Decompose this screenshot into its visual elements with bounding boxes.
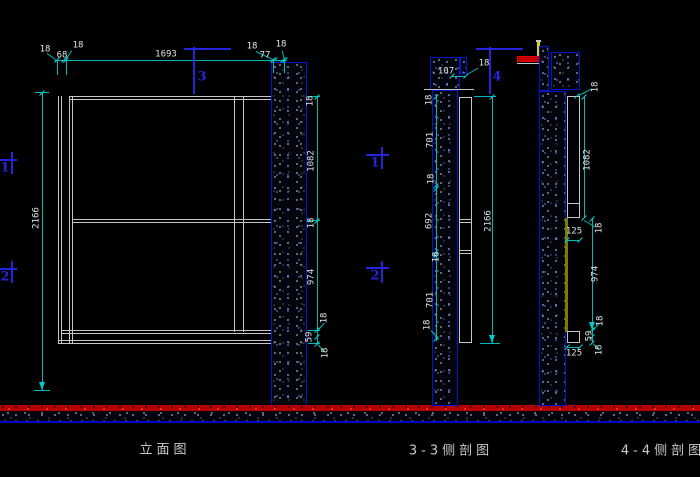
elevation-top-rail [69,96,272,100]
section44-stone-column [539,91,566,406]
dim-label: 692 [426,213,435,229]
section-marker-4-bar [476,48,523,50]
section-marker-1-edge: 1 [0,162,9,175]
caption-section-44: 4-4侧剖图 [621,440,700,459]
section-marker-1-mid: 1 [370,157,379,170]
dim-label: 18 [308,218,317,229]
section-marker-2-edge: 2 [0,271,9,284]
dim-label: 18 [276,41,287,50]
dim-label: 107 [438,68,454,77]
elevation-height-dim-line [42,92,43,390]
section-marker-2-mid: 2 [370,270,379,283]
section33-left-dim-line [436,95,437,341]
section-marker-4: 4 [492,71,501,84]
section-marker-1-edge-stem [11,152,13,174]
dim-label: 59 [306,332,315,343]
section33-shelf-lower [459,250,472,254]
dim-label: 974 [308,269,317,285]
dim-label: 18 [322,348,331,359]
section44-column-neck [539,46,549,91]
dim-label: 18 [247,43,258,52]
dim-label: 125 [566,228,582,237]
dim-label: 18 [596,223,605,234]
section-marker-3: 3 [197,71,206,84]
dim-label: 701 [427,292,436,308]
section-marker-3-stem [193,47,195,94]
dim-label: 974 [592,266,601,282]
dim-label: 59 [586,331,595,342]
elevation-top-dim-line [55,60,287,61]
elevation-stone-column [271,62,307,406]
elevation-left-stile-outer [58,96,62,344]
dim-label: 701 [427,132,436,148]
dim-label: 18 [307,96,316,107]
dim-label: 125 [566,350,582,359]
caption-elevation: 立面图 [139,439,190,458]
section-marker-3-bar [184,48,231,50]
section44-red-beam [517,56,541,62]
dim-label: 18 [597,316,606,327]
dim-label: 77 [260,52,271,61]
section44-panel-bottom-line [567,203,580,204]
dim-label: 2166 [33,207,42,229]
dim-label: 18 [426,95,435,106]
dim-label: 18 [73,42,84,51]
section44-base-block [567,331,580,343]
section33-shelf-upper [459,219,472,223]
cad-drawing-canvas: 18 68 18 1693 18 77 18 2166 18 1082 18 9… [0,0,700,477]
elevation-right-stile-line-2 [243,96,244,332]
elevation-right-stile-line-1 [234,96,235,332]
dim-label: 1082 [584,149,593,171]
section-marker-2-edge-stem [11,261,13,283]
elevation-bottom-rail-upper [61,330,272,334]
elevation-middle-shelf [72,219,272,223]
dim-label: 18 [40,46,51,55]
dim-label: 18 [596,345,605,356]
dim-label: 18 [321,313,330,324]
dim-label: 2166 [485,210,494,232]
elevation-bottom-rail-lower [58,340,272,344]
section33-ceiling-block-tab [460,57,467,74]
floor-blue-line [0,421,700,423]
dim-label: 68 [57,52,68,61]
dim-label: 18 [428,174,437,185]
section44-ceiling-line [517,63,541,64]
section-marker-1-mid-stem [381,147,383,169]
section-marker-2-mid-stem [381,261,383,283]
dim-label: 18 [479,60,490,69]
dim-label: 18 [433,252,442,263]
dim-label: 1693 [155,51,177,60]
dim-label: 18 [424,320,433,331]
section44-ceiling-block [551,52,580,90]
dim-label: 18 [592,82,601,93]
floor-speckle-band [0,411,700,421]
section-marker-4-stem [489,47,491,94]
section44-cabinet-panel [567,96,580,218]
dim-label: 1082 [308,150,317,172]
caption-section-33: 3-3侧剖图 [409,440,493,459]
